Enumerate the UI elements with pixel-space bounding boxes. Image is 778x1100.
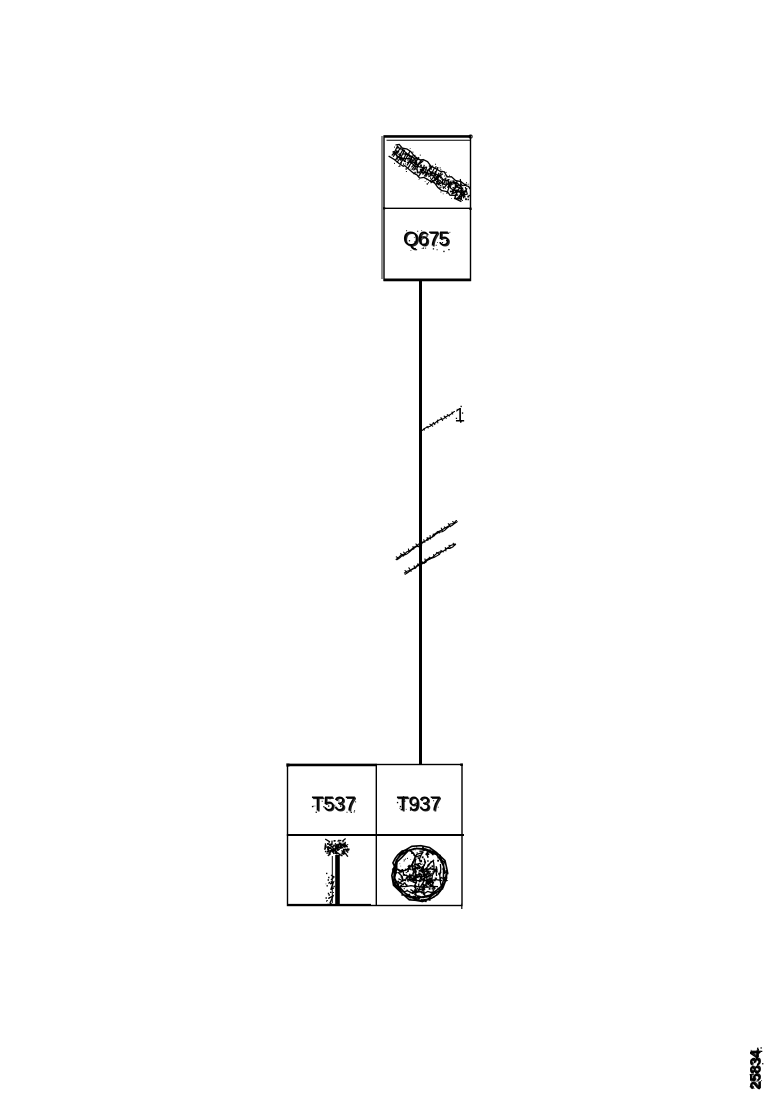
svg-text:T937: T937 <box>398 795 442 817</box>
svg-text:1: 1 <box>455 406 466 427</box>
svg-text:25834: 25834 <box>748 1048 765 1088</box>
svg-text:Q675: Q675 <box>404 229 450 251</box>
